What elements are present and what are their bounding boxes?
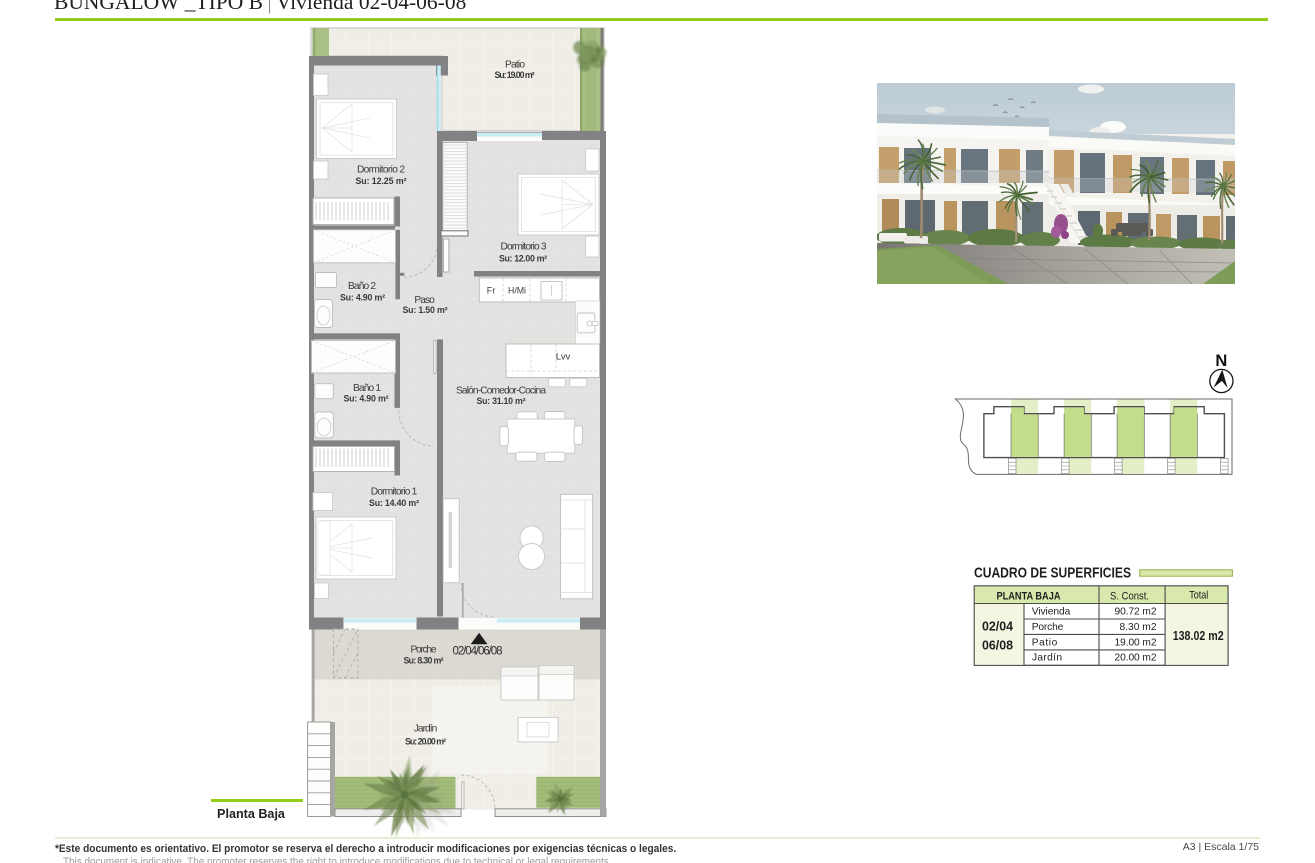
svg-text:Su: 12.00 m²: Su: 12.00 m² (499, 254, 547, 264)
svg-text:Vivienda: Vivienda (1032, 606, 1071, 617)
svg-text:Su: 4.90 m²: Su: 4.90 m² (344, 394, 389, 404)
svg-text:S. Const.: S. Const. (1110, 590, 1149, 602)
svg-text:Su: 31.10 m²: Su: 31.10 m² (477, 396, 526, 406)
svg-text:Porche: Porche (411, 645, 437, 656)
svg-text:CUADRO DE SUPERFICIES: CUADRO DE SUPERFICIES (974, 565, 1131, 582)
svg-text:Su: 12.25 m²: Su: 12.25 m² (356, 176, 407, 186)
svg-text:Jardín: Jardín (1032, 653, 1062, 664)
svg-text:Dormitorio 2: Dormitorio 2 (357, 165, 405, 176)
svg-text:Patio: Patio (505, 60, 525, 71)
svg-text:Total: Total (1189, 589, 1208, 601)
svg-text:Baño 2: Baño 2 (348, 281, 376, 292)
svg-text:Lvv: Lvv (556, 352, 571, 363)
svg-text:138.02 m2: 138.02 m2 (1173, 628, 1224, 643)
svg-text:20.00 m2: 20.00 m2 (1115, 653, 1157, 664)
svg-text:Su: 8.30 m²: Su: 8.30 m² (404, 656, 444, 666)
svg-text:02/04/06/08: 02/04/06/08 (453, 646, 503, 658)
svg-text:8.30 m2: 8.30 m2 (1120, 622, 1157, 633)
svg-text:Jardín: Jardín (414, 724, 438, 735)
svg-text:06/08: 06/08 (982, 637, 1013, 652)
svg-text:N: N (1215, 352, 1227, 370)
svg-text:Baño 1: Baño 1 (353, 383, 381, 394)
svg-text:Patio: Patio (1032, 637, 1058, 648)
svg-text:19.00 m2: 19.00 m2 (1115, 637, 1157, 648)
svg-text:PLANTA BAJA: PLANTA BAJA (997, 590, 1061, 602)
svg-text:Su: 20.00 m²: Su: 20.00 m² (405, 737, 446, 747)
svg-text:Su: 19.00 m²: Su: 19.00 m² (495, 70, 535, 80)
svg-text:90.72 m2: 90.72 m2 (1115, 606, 1157, 617)
svg-text:Su: 14.40 m²: Su: 14.40 m² (369, 498, 419, 508)
svg-text:Dormitorio 3: Dormitorio 3 (501, 242, 547, 253)
svg-text:Dormitorio 1: Dormitorio 1 (371, 487, 418, 498)
svg-text:H/Mi: H/Mi (508, 286, 526, 296)
svg-text:Su: 1.50 m²: Su: 1.50 m² (403, 305, 448, 315)
svg-text:Su: 4.90 m²: Su: 4.90 m² (340, 293, 385, 303)
svg-text:Salón-Comedor-Cocina: Salón-Comedor-Cocina (456, 386, 546, 397)
svg-text:Fr: Fr (487, 286, 496, 296)
svg-text:Porche: Porche (1032, 622, 1064, 633)
svg-text:02/04: 02/04 (982, 619, 1014, 634)
